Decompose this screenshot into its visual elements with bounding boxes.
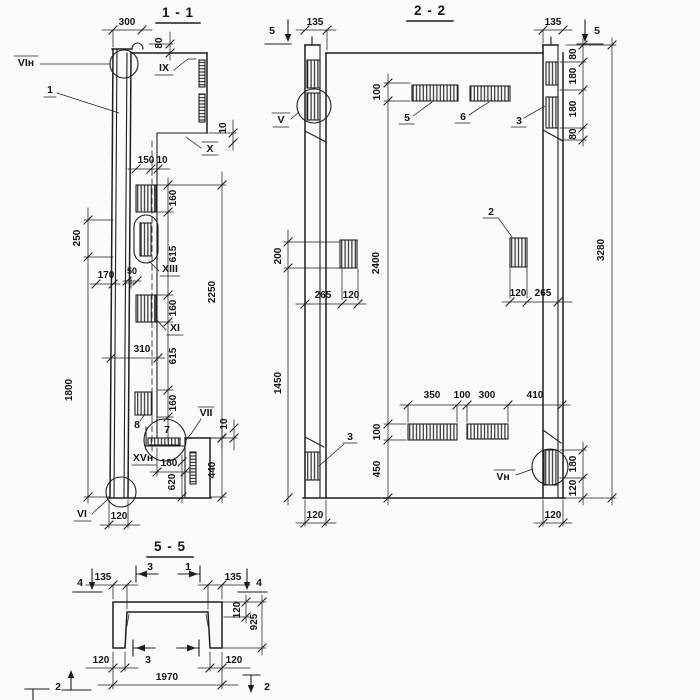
cut-mark-text: 3 bbox=[145, 654, 151, 666]
callout-vi-bottom: VI bbox=[74, 500, 107, 521]
callout-text: Vн bbox=[496, 471, 509, 483]
dim-text: 615 bbox=[168, 245, 179, 262]
dim-120-col-left: 120 bbox=[296, 500, 336, 527]
cut-mark-text: 4 bbox=[256, 577, 262, 589]
dim-text: 180 bbox=[568, 100, 579, 117]
callout-text: VIн bbox=[18, 57, 34, 69]
cut-mark-text: 5 bbox=[594, 25, 600, 37]
embedded-plate bbox=[307, 60, 320, 88]
dim-120-flange: 120 bbox=[224, 595, 250, 623]
callout-text: XI bbox=[170, 322, 180, 334]
embedded-plate bbox=[544, 450, 558, 485]
cut-marker-4-right: 4 bbox=[238, 569, 267, 592]
dim-250-1800: 250 1800 bbox=[64, 208, 113, 503]
callout-pos-6: 6 bbox=[455, 102, 489, 123]
callout-vii: VII bbox=[186, 407, 214, 440]
callout-text: 3 bbox=[516, 115, 522, 127]
weld-plate bbox=[148, 438, 180, 445]
callout-text: V bbox=[277, 114, 284, 126]
dim-150-10: 150 10 bbox=[128, 155, 170, 173]
dim-text: 615 bbox=[168, 347, 179, 364]
section-1-1-view: 1 - 1 VI bbox=[14, 5, 238, 529]
bottom-extension-block bbox=[146, 427, 210, 497]
dim-text: 80 bbox=[154, 37, 165, 49]
callout-text: 6 bbox=[460, 111, 466, 123]
drawing-sheet: 1 - 1 VI bbox=[0, 0, 700, 700]
callout-pos-7: 7 bbox=[164, 424, 170, 436]
dim-180: 180 bbox=[150, 448, 192, 476]
callout-text: IX bbox=[159, 62, 169, 74]
callout-pos-2: 2 bbox=[483, 206, 512, 237]
dim-text: 120 bbox=[568, 479, 579, 496]
dim-text: 250 bbox=[72, 229, 83, 246]
callout-text: 2 bbox=[488, 206, 494, 218]
dim-text: 265 bbox=[315, 290, 332, 301]
dim-text: 1450 bbox=[273, 371, 284, 394]
dim-text: 180 bbox=[568, 67, 579, 84]
dim-120-bottom-right: 120 bbox=[198, 652, 250, 672]
callout-vn-bottom: Vн bbox=[494, 469, 533, 483]
dim-text: 350 bbox=[424, 390, 441, 401]
cut-mark-text: 5 bbox=[269, 25, 275, 37]
dim-text: 160 bbox=[168, 299, 179, 316]
embedded-bar bbox=[408, 424, 457, 440]
dim-10-right: 10 bbox=[211, 418, 238, 450]
embedded-plate bbox=[340, 240, 357, 268]
callout-xv: XVн bbox=[132, 452, 156, 465]
cut-marker-1-bottom bbox=[177, 640, 199, 656]
cut-mark-text: 3 bbox=[147, 561, 153, 573]
dim-text: 120 bbox=[510, 288, 527, 299]
dim-text: 160 bbox=[168, 189, 179, 206]
cut-mark-text: 2 bbox=[264, 681, 270, 693]
dim-text: 2400 bbox=[371, 251, 382, 274]
cut-marker-2-right: 2 bbox=[243, 675, 270, 693]
channel-section-outline bbox=[113, 602, 222, 648]
dim-300: 300 bbox=[102, 17, 152, 47]
section-1-1-title: 1 - 1 bbox=[156, 5, 200, 23]
dim-text: 620 bbox=[167, 473, 178, 490]
cut-marker-2-left: 2 bbox=[55, 670, 91, 693]
cut-marker-5-right: 5 bbox=[577, 20, 603, 44]
dim-chain-inner-left: 100 2400 100 450 bbox=[371, 74, 410, 505]
callout-pos-1: 1 bbox=[44, 84, 119, 113]
embedded-bar bbox=[412, 85, 458, 101]
dim-text: 80 bbox=[568, 48, 579, 60]
embedded-bar bbox=[470, 86, 510, 101]
callout-text: 3 bbox=[347, 431, 353, 443]
dim-120-col-right: 120 bbox=[534, 500, 572, 527]
callout-xi: XI bbox=[156, 319, 183, 335]
dim-text: 50 bbox=[127, 266, 137, 276]
dim-text: 150 bbox=[138, 155, 155, 166]
section-5-5-view: 5 - 5 135 135 4 4 3 1 bbox=[25, 539, 270, 700]
dim-350-100-300-410: 350 100 300 410 bbox=[400, 390, 570, 422]
dim-text: 10 bbox=[218, 122, 229, 134]
dim-text: 120 bbox=[93, 655, 110, 666]
dim-text: 310 bbox=[134, 344, 151, 355]
rib-embedded-plates bbox=[126, 185, 158, 415]
callout-text: XVн bbox=[133, 452, 153, 464]
embedded-plate bbox=[190, 452, 196, 484]
dim-chain-bottom-right: 180 120 bbox=[560, 442, 587, 505]
dim-120-265-right: 120 265 bbox=[502, 268, 572, 306]
callout-text: 8 bbox=[134, 419, 140, 431]
cut-marker-3-bottom: 3 bbox=[133, 640, 155, 666]
frame-corner bbox=[25, 689, 49, 700]
callout-pos-3-left: 3 bbox=[319, 431, 357, 466]
dim-text: 120 bbox=[343, 290, 360, 301]
dim-text: 135 bbox=[225, 572, 242, 583]
embedded-plate bbox=[135, 392, 152, 415]
dim-120-bottom: 120 bbox=[100, 500, 140, 529]
dim-text: 440 bbox=[207, 461, 218, 478]
dim-text: 450 bbox=[372, 460, 383, 477]
dim-text: 2250 bbox=[207, 280, 218, 303]
dim-chain-top-right: 80 180 180 80 bbox=[560, 38, 587, 146]
embedded-plate bbox=[546, 97, 558, 128]
section-2-2-view: 2 - 2 5 bbox=[265, 3, 616, 527]
dim-text: 265 bbox=[535, 288, 552, 299]
dim-text: 120 bbox=[545, 510, 562, 521]
cut-marker-1-top: 1 bbox=[178, 561, 200, 582]
embedded-plate bbox=[136, 295, 156, 322]
dim-text: 410 bbox=[527, 390, 544, 401]
callout-pos-5: 5 bbox=[399, 102, 432, 124]
section-5-5-title: 5 - 5 bbox=[147, 539, 193, 557]
dim-text: 200 bbox=[273, 247, 284, 264]
dim-text: 135 bbox=[545, 17, 562, 28]
cut-mark-text: 2 bbox=[55, 681, 61, 693]
dim-text: 120 bbox=[232, 601, 243, 618]
dim-120-bottom-left: 120 bbox=[86, 652, 138, 672]
dim-text: 180 bbox=[161, 458, 178, 469]
dim-1970: 1970 bbox=[98, 671, 238, 689]
dim-text: 80 bbox=[568, 128, 579, 140]
section-2-2-title: 2 - 2 bbox=[407, 3, 453, 21]
dim-text: 925 bbox=[249, 613, 260, 630]
callout-text: VII bbox=[200, 407, 213, 419]
dim-text: 170 bbox=[98, 270, 115, 281]
dim-text: 120 bbox=[226, 655, 243, 666]
dim-80: 80 bbox=[149, 32, 174, 60]
cut-marker-5-left: 5 bbox=[265, 20, 291, 44]
detail-circle-vi-top bbox=[110, 50, 138, 78]
callout-vi-top: VIн bbox=[14, 56, 110, 69]
embedded-plate bbox=[136, 185, 156, 212]
dim-text: 100 bbox=[372, 83, 383, 100]
cut-mark-text: 4 bbox=[77, 577, 83, 589]
callout-x: X bbox=[186, 137, 218, 155]
callout-text: 7 bbox=[164, 424, 170, 436]
section-2-2-title-text: 2 - 2 bbox=[414, 3, 446, 18]
drawing-canvas: 1 - 1 VI bbox=[0, 0, 700, 700]
section-1-1-title-text: 1 - 1 bbox=[162, 5, 194, 20]
embedded-plate bbox=[307, 93, 320, 120]
embedded-plate bbox=[305, 452, 320, 480]
dim-text: 1970 bbox=[156, 672, 179, 683]
dim-text: 300 bbox=[479, 390, 496, 401]
dim-text: 10 bbox=[156, 155, 168, 166]
dim-265-120-left: 265 120 bbox=[296, 269, 366, 308]
dim-text: 160 bbox=[168, 394, 179, 411]
callout-v-top: V bbox=[272, 112, 299, 127]
dim-text: 135 bbox=[307, 17, 324, 28]
callout-text: 1 bbox=[47, 84, 53, 96]
callout-ix: IX bbox=[155, 59, 196, 75]
embedded-plate bbox=[140, 223, 151, 256]
dim-text: 100 bbox=[454, 390, 471, 401]
dim-text: 10 bbox=[219, 418, 230, 430]
dim-text: 300 bbox=[119, 17, 136, 28]
callout-pos-3-right: 3 bbox=[511, 106, 545, 127]
rib-member-elevation bbox=[109, 43, 211, 498]
callout-text: VI bbox=[77, 508, 87, 520]
callout-text: 5 bbox=[404, 112, 410, 124]
section-5-5-title-text: 5 - 5 bbox=[154, 539, 186, 554]
embedded-bar bbox=[467, 424, 508, 439]
embedded-plate bbox=[199, 60, 205, 87]
lifting-loop bbox=[132, 43, 143, 49]
dim-chain-right: 160 615 160 615 160 bbox=[157, 178, 179, 442]
embedded-plate bbox=[510, 238, 527, 267]
dim-text: 100 bbox=[372, 423, 383, 440]
embedded-plate bbox=[199, 94, 205, 122]
dim-text: 180 bbox=[568, 455, 579, 472]
dim-text: 135 bbox=[95, 572, 112, 583]
dim-text: 1800 bbox=[64, 378, 75, 401]
dim-text: 3280 bbox=[596, 238, 607, 261]
callout-text: XIII bbox=[162, 263, 178, 275]
cut-marker-3-top: 3 bbox=[136, 561, 158, 582]
dim-135-left-55: 135 bbox=[86, 572, 138, 609]
embedded-plate bbox=[546, 62, 558, 85]
dim-text: 120 bbox=[307, 510, 324, 521]
callout-text: X bbox=[206, 143, 213, 155]
callout-pos-8: 8 bbox=[134, 414, 145, 431]
dim-text: 120 bbox=[111, 511, 128, 522]
dim-135-right: 135 bbox=[534, 17, 572, 43]
